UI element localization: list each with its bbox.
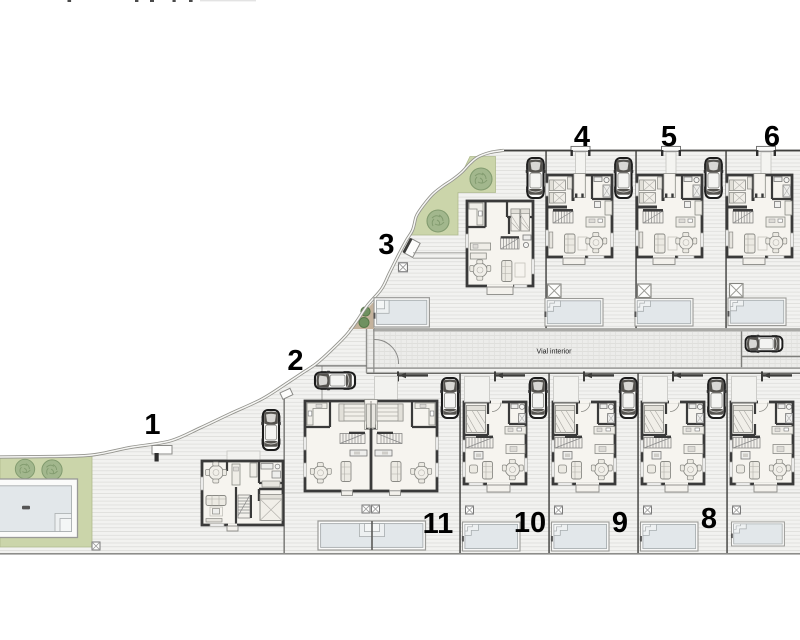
svg-text:5: 5 [661,121,677,153]
svg-text:3: 3 [378,229,394,261]
svg-text:10: 10 [514,507,546,539]
svg-text:11: 11 [423,508,454,540]
svg-text:6: 6 [764,121,780,153]
svg-text:4: 4 [574,121,590,153]
svg-text:2: 2 [287,345,303,377]
svg-text:8: 8 [701,503,717,535]
svg-text:9: 9 [612,507,628,539]
svg-text:Vial interior: Vial interior [537,349,573,356]
svg-text:1: 1 [144,409,160,441]
